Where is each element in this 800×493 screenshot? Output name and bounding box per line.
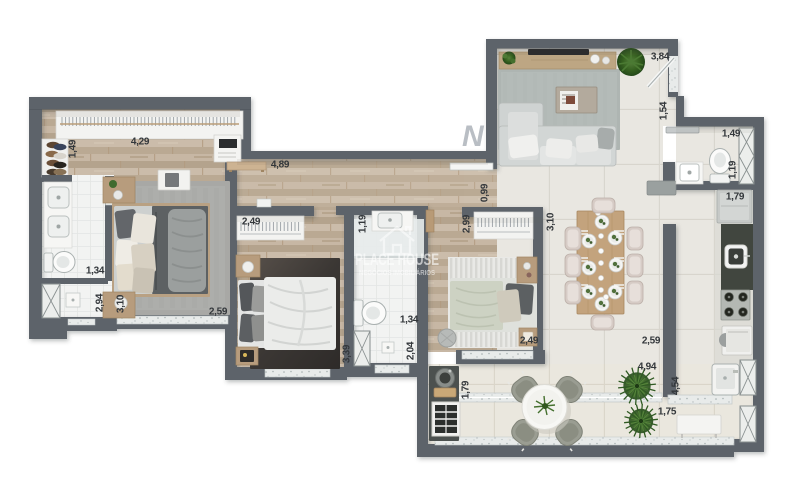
svg-text:1,54: 1,54	[659, 101, 670, 120]
svg-text:4,94: 4,94	[638, 362, 657, 373]
svg-text:1,34: 1,34	[86, 266, 105, 277]
svg-text:4,29: 4,29	[131, 137, 150, 148]
svg-text:3,10: 3,10	[546, 212, 557, 231]
svg-text:1,34: 1,34	[400, 315, 419, 326]
svg-text:NEGÓCIOS IMOBILIÁRIOS: NEGÓCIOS IMOBILIÁRIOS	[359, 268, 435, 277]
svg-text:4,54: 4,54	[671, 376, 682, 395]
svg-text:1,49: 1,49	[722, 129, 741, 140]
svg-text:PLACE HOUSE: PLACE HOUSE	[355, 250, 439, 269]
svg-text:2,59: 2,59	[209, 307, 228, 318]
svg-text:3,39: 3,39	[342, 344, 353, 363]
svg-text:2,59: 2,59	[642, 336, 661, 347]
svg-text:3,10: 3,10	[116, 294, 127, 313]
svg-text:N: N	[462, 120, 485, 153]
svg-text:1,75: 1,75	[658, 407, 677, 418]
svg-text:2,49: 2,49	[242, 217, 261, 228]
svg-text:1,79: 1,79	[726, 192, 745, 203]
svg-text:2,99: 2,99	[462, 214, 473, 233]
svg-text:3,84: 3,84	[651, 52, 670, 63]
svg-text:1,19: 1,19	[358, 214, 369, 233]
svg-text:2,94: 2,94	[95, 293, 106, 312]
svg-text:1,49: 1,49	[68, 139, 79, 158]
svg-text:2,49: 2,49	[520, 336, 539, 347]
svg-text:1,79: 1,79	[461, 380, 472, 399]
svg-text:0,99: 0,99	[480, 183, 491, 202]
svg-text:4,89: 4,89	[271, 160, 290, 171]
svg-text:2,04: 2,04	[406, 341, 417, 360]
svg-text:1,19: 1,19	[728, 160, 739, 179]
